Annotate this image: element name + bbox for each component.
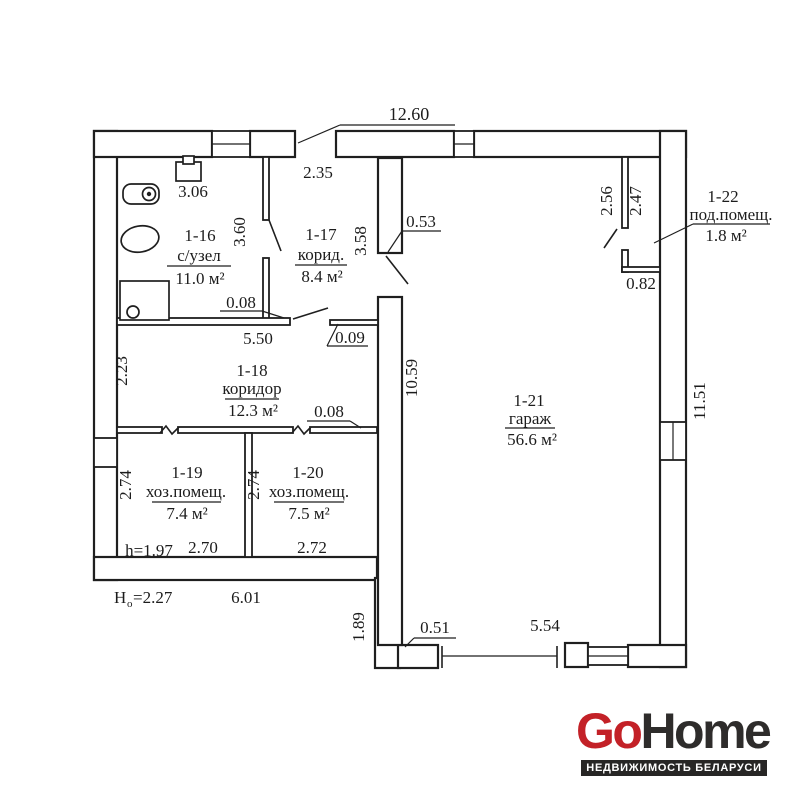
dimension-line-garage-door bbox=[442, 646, 557, 668]
wall-right bbox=[660, 131, 686, 667]
wall-top-garage-b bbox=[474, 131, 686, 157]
window-bottom-garage bbox=[588, 647, 628, 665]
partition-bath-upper bbox=[263, 157, 269, 220]
dim-corr-wall-thk: 0.09 bbox=[335, 328, 365, 347]
room-label-1-17: 1-17 корид. 8.4 м² bbox=[298, 225, 344, 286]
window-top-garage bbox=[454, 131, 474, 157]
svg-text:1-17: 1-17 bbox=[305, 225, 337, 244]
toilet-icon bbox=[119, 223, 161, 255]
gohome-wordmark: GoHome bbox=[576, 706, 776, 756]
dim-lower-wall-thk: 0.08 bbox=[314, 402, 344, 421]
dim-room20-h: 2.74 bbox=[244, 470, 263, 500]
svg-text:1.8 м²: 1.8 м² bbox=[705, 226, 746, 245]
wall-break-mark-2 bbox=[292, 426, 311, 434]
wall-garage-left bbox=[378, 297, 402, 645]
wall-garage-door-pillar bbox=[565, 643, 588, 667]
dim-ledge: 1.89 bbox=[349, 612, 368, 642]
leader-overall bbox=[298, 125, 340, 143]
wall-left bbox=[94, 131, 117, 580]
shower-icon bbox=[120, 281, 169, 320]
sink-icon bbox=[123, 184, 159, 204]
window-left-wall bbox=[94, 438, 117, 467]
svg-text:8.4 м²: 8.4 м² bbox=[301, 267, 342, 286]
svg-text:1-16: 1-16 bbox=[184, 226, 215, 245]
dim-ceiling-h: h=1.97 bbox=[125, 541, 173, 560]
dim-bottom-len: 6.01 bbox=[231, 588, 261, 607]
svg-text:1-19: 1-19 bbox=[171, 463, 202, 482]
dim-room19-h: 2.74 bbox=[116, 470, 135, 500]
svg-text:Н: Н bbox=[114, 588, 126, 607]
door-garage bbox=[386, 256, 408, 284]
svg-text:хоз.помещ.: хоз.помещ. bbox=[146, 482, 226, 501]
dim-overall-width: 12.60 bbox=[389, 104, 430, 124]
dim-shaft-width: 0.82 bbox=[626, 274, 656, 293]
dim-stub: 0.53 bbox=[406, 212, 436, 231]
dim-garage-left-wall: 10.59 bbox=[402, 359, 421, 397]
floor-plan: 12.60 2.35 3.06 3.60 3.58 0.53 2.56 2.47… bbox=[0, 0, 812, 800]
svg-text:под.помещ.: под.помещ. bbox=[690, 205, 773, 224]
room-label-1-19: 1-19 хоз.помещ. 7.4 м² bbox=[146, 463, 226, 523]
dim-shaft-right: 2.47 bbox=[626, 186, 645, 216]
wall-corridor-bottom-c bbox=[310, 427, 377, 433]
svg-text:7.4 м²: 7.4 м² bbox=[166, 504, 207, 523]
room-label-1-18: 1-18 коридор 12.3 м² bbox=[222, 361, 281, 420]
svg-text:корид.: корид. bbox=[298, 245, 344, 264]
dim-shaft-left: 2.56 bbox=[597, 186, 616, 216]
svg-text:гараж: гараж bbox=[509, 409, 552, 428]
room-label-1-21: 1-21 гараж 56.6 м² bbox=[507, 391, 557, 449]
dim-right-wall: 11.51 bbox=[690, 382, 709, 420]
svg-text:1-22: 1-22 bbox=[707, 187, 738, 206]
dim-bath-wall-thk: 0.08 bbox=[226, 293, 256, 312]
door-bathroom bbox=[269, 220, 281, 251]
dim-bath-wall-len: 5.50 bbox=[243, 329, 273, 348]
door-corridor bbox=[293, 308, 328, 319]
wall-garage-left-stub bbox=[378, 158, 402, 253]
dim-basin: 3.06 bbox=[178, 182, 208, 201]
logo-home-text: Home bbox=[640, 703, 769, 759]
room-label-1-20: 1-20 хоз.помещ. 7.5 м² bbox=[269, 463, 349, 523]
dim-room19-w: 2.70 bbox=[188, 538, 218, 557]
dim-corr-left: 2.23 bbox=[112, 356, 131, 386]
partition-bath-lower bbox=[263, 258, 269, 320]
wash-basin-icon bbox=[176, 156, 201, 181]
svg-text:7.5 м²: 7.5 м² bbox=[288, 504, 329, 523]
window-top-bathroom bbox=[212, 131, 250, 157]
logo-go-text: Go bbox=[576, 703, 640, 759]
gohome-logo: GoHome НЕДВИЖИМОСТЬ БЕЛАРУСИ bbox=[576, 706, 776, 776]
wall-top-garage-a bbox=[336, 131, 454, 157]
svg-text:1-21: 1-21 bbox=[513, 391, 544, 410]
svg-text:с/узел: с/узел bbox=[177, 246, 221, 265]
svg-text:12.3 м²: 12.3 м² bbox=[228, 401, 278, 420]
wall-corridor-bottom-b bbox=[178, 427, 293, 433]
svg-text:коридор: коридор bbox=[222, 379, 281, 398]
dim-garage-door: 5.54 bbox=[530, 616, 560, 635]
partition-shaft-l-horiz bbox=[622, 267, 660, 272]
room-label-1-22: 1-22 под.помещ. 1.8 м² bbox=[690, 187, 773, 245]
svg-text:1-18: 1-18 bbox=[236, 361, 267, 380]
wall-top-b bbox=[250, 131, 295, 157]
logo-tagline: НЕДВИЖИМОСТЬ БЕЛАРУСИ bbox=[581, 760, 767, 776]
dim-outer-height: Н о =2.27 bbox=[114, 588, 173, 610]
wall-bottom-left-section bbox=[94, 557, 377, 580]
wall-corridor-top-right bbox=[330, 320, 378, 325]
door-shaft bbox=[604, 229, 617, 248]
window-right-wall bbox=[660, 422, 686, 460]
wall-garage-door-stub bbox=[398, 645, 438, 668]
dim-bath-partition: 3.60 bbox=[230, 217, 249, 247]
svg-text:1-20: 1-20 bbox=[292, 463, 323, 482]
svg-text:11.0 м²: 11.0 м² bbox=[175, 269, 224, 288]
room-label-1-16: 1-16 с/узел 11.0 м² bbox=[175, 226, 224, 288]
dim-nook: 3.58 bbox=[351, 226, 370, 256]
wall-corridor-bottom-a bbox=[117, 427, 162, 433]
svg-text:хоз.помещ.: хоз.помещ. bbox=[269, 482, 349, 501]
wall-top-a bbox=[94, 131, 212, 157]
svg-text:56.6 м²: 56.6 м² bbox=[507, 430, 557, 449]
dim-entry-opening: 2.35 bbox=[303, 163, 333, 182]
dim-door-stub: 0.51 bbox=[420, 618, 450, 637]
dim-room20-w: 2.72 bbox=[297, 538, 327, 557]
wall-bottom-right bbox=[628, 645, 686, 667]
svg-text:=2.27: =2.27 bbox=[133, 588, 173, 607]
